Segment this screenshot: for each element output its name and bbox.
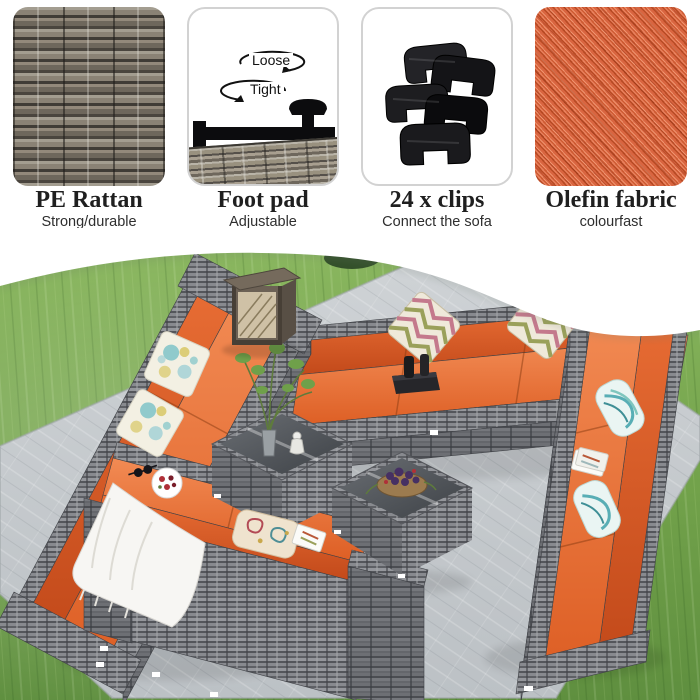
footpad-diagram: Loose Tight	[187, 7, 339, 186]
product-infographic: Loose Tight PE Rattan Strong/durable Foo…	[0, 0, 700, 700]
feature-caption-footpad: Foot pad Adjustable	[173, 188, 353, 230]
feature-title: Olefin fabric	[521, 188, 700, 213]
olefin-texture-image	[535, 7, 687, 186]
feature-caption-olefin: Olefin fabric colourfast	[521, 188, 700, 230]
loose-label: Loose	[249, 53, 293, 67]
feature-title: 24 x clips	[347, 188, 527, 213]
garden-photo	[0, 228, 700, 700]
feature-caption-rattan: PE Rattan Strong/durable	[0, 188, 179, 230]
tight-label: Tight	[247, 82, 284, 96]
feature-title: Foot pad	[173, 188, 353, 213]
clips-image	[361, 7, 513, 186]
feature-title: PE Rattan	[0, 188, 179, 213]
clips-graphic	[363, 9, 511, 184]
rattan-texture-image	[13, 7, 165, 186]
